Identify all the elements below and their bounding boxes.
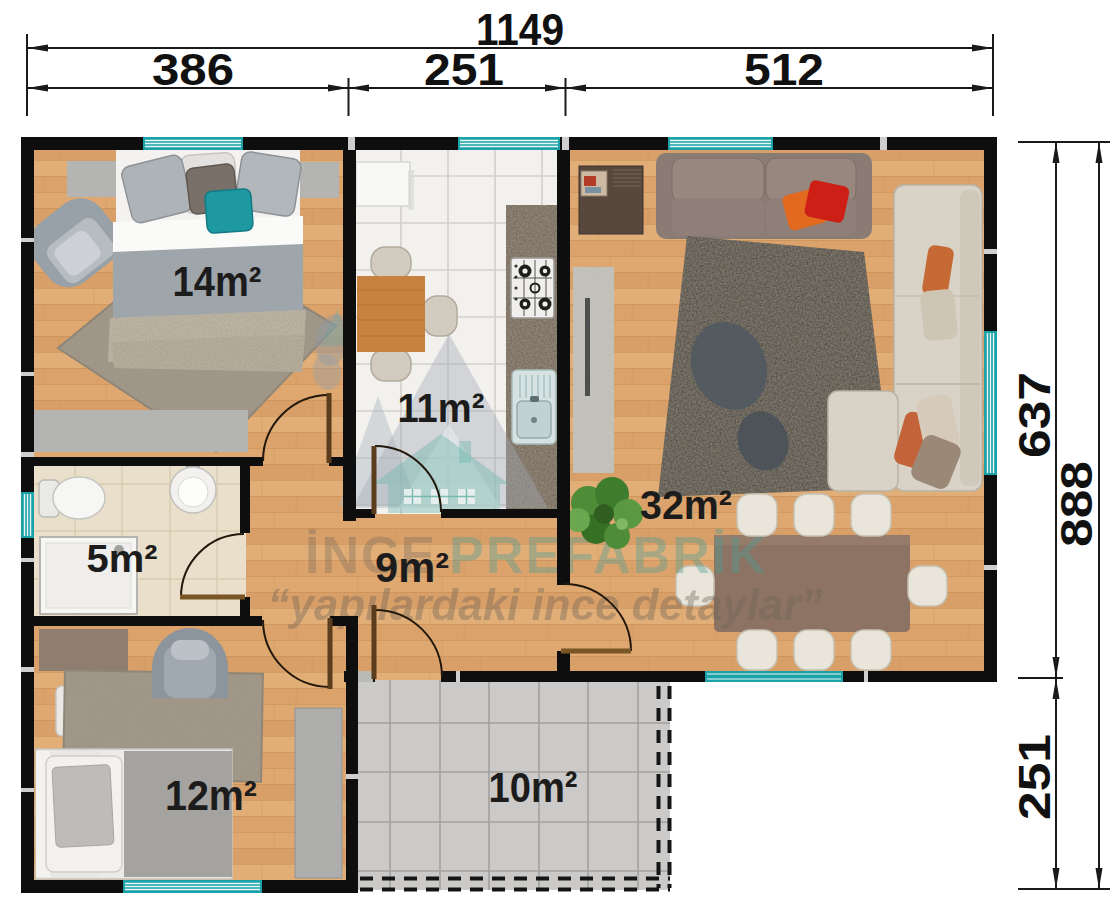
svg-text:11m²: 11m² xyxy=(398,385,485,431)
svg-text:14m²: 14m² xyxy=(173,258,262,305)
svg-text:10m²: 10m² xyxy=(489,763,578,811)
svg-text:12m²: 12m² xyxy=(165,772,257,819)
svg-text:512: 512 xyxy=(744,45,824,94)
svg-text:386: 386 xyxy=(152,45,234,94)
svg-text:888: 888 xyxy=(1052,461,1101,547)
svg-text:32m²: 32m² xyxy=(640,482,732,528)
svg-text:5m²: 5m² xyxy=(87,537,158,580)
svg-text:251: 251 xyxy=(1010,734,1059,820)
svg-text:251: 251 xyxy=(424,45,504,94)
svg-text:637: 637 xyxy=(1010,372,1059,458)
svg-text:9m²: 9m² xyxy=(375,544,449,591)
